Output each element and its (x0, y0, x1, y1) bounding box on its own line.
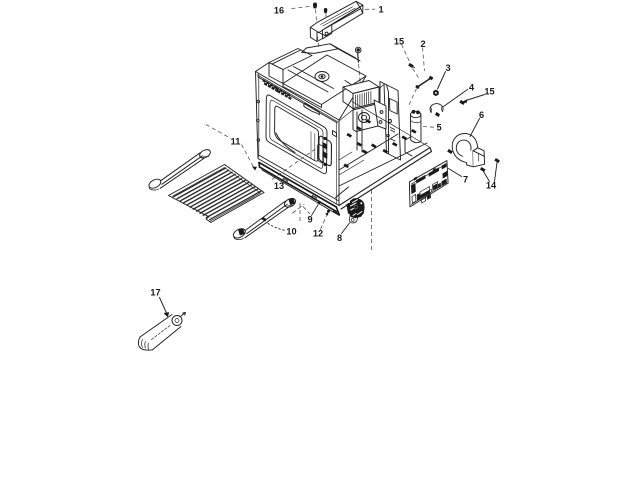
svg-text:3: 3 (445, 63, 450, 73)
svg-text:4: 4 (469, 82, 475, 92)
svg-text:11: 11 (231, 137, 241, 147)
svg-text:8: 8 (337, 233, 342, 243)
svg-text:14: 14 (486, 181, 497, 191)
svg-text:13: 13 (274, 181, 284, 191)
svg-text:15: 15 (484, 86, 494, 96)
svg-text:2: 2 (420, 39, 425, 49)
svg-text:17: 17 (150, 287, 160, 297)
svg-text:15: 15 (394, 36, 404, 46)
svg-text:6: 6 (479, 110, 484, 120)
svg-text:12: 12 (313, 228, 323, 238)
svg-text:5: 5 (436, 123, 441, 133)
svg-text:1: 1 (378, 4, 383, 14)
svg-text:10: 10 (286, 227, 296, 237)
svg-text:16: 16 (274, 5, 284, 15)
svg-text:9: 9 (307, 215, 312, 225)
svg-text:7: 7 (463, 174, 468, 184)
